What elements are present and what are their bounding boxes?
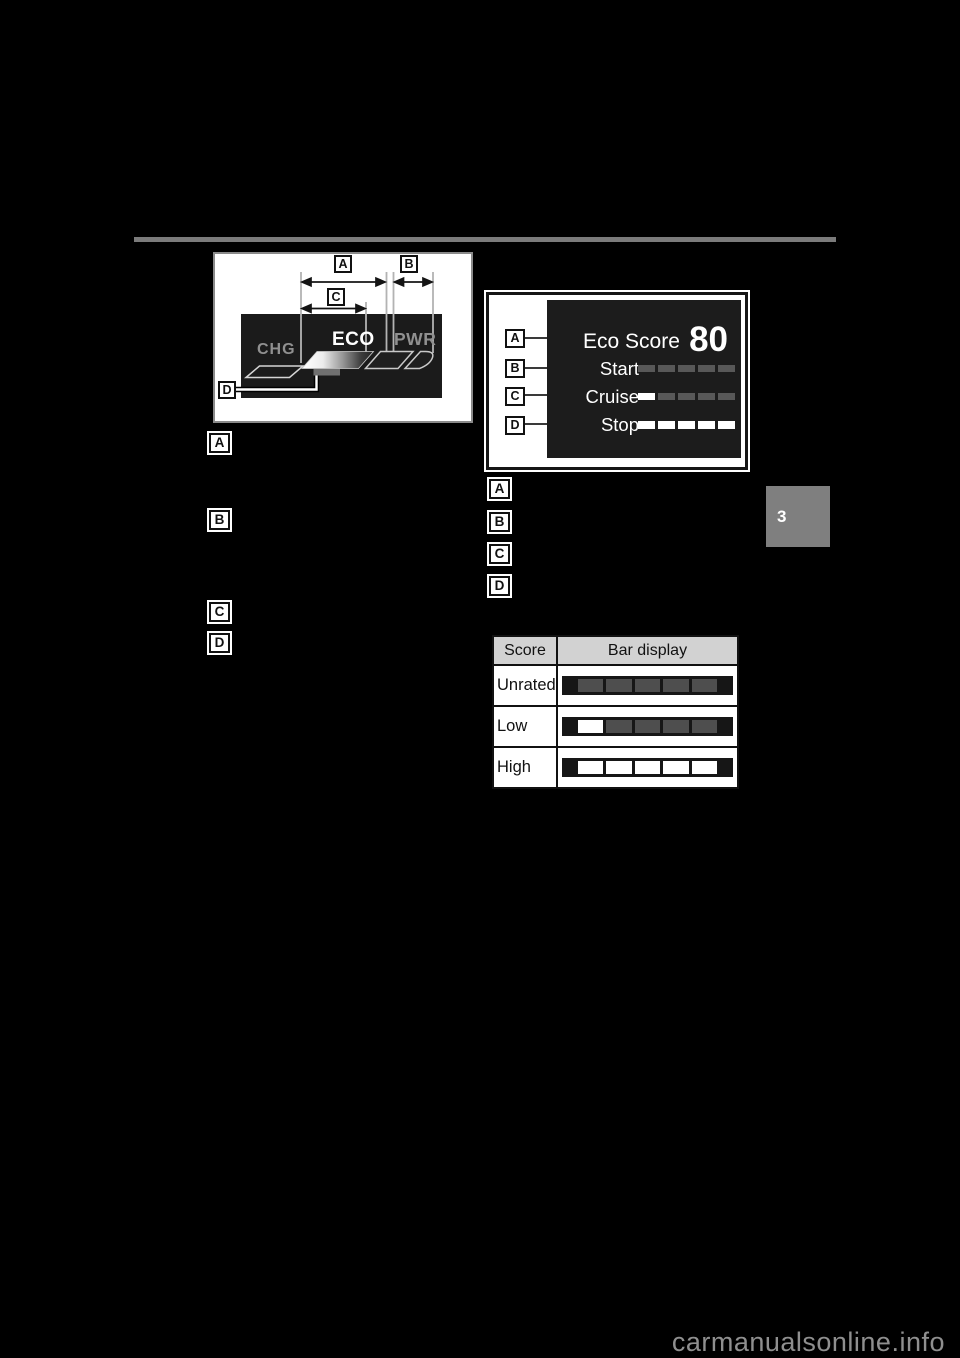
- bar-segment: [718, 393, 735, 401]
- bar-segment: [635, 720, 660, 733]
- table-cell-bar: [556, 748, 737, 787]
- figure-callout-a: A: [334, 255, 352, 273]
- eco-legend-marker-b: B: [489, 512, 510, 532]
- bar-segment: [606, 761, 631, 774]
- eco-callout-a-line: [525, 337, 547, 339]
- eco-score-title: Eco Score: [583, 331, 680, 352]
- eco-callout-d-line: [525, 423, 547, 425]
- bar-segment: [663, 679, 688, 692]
- figure-callout-d: D: [218, 381, 236, 399]
- score-bar-table: Score Bar display Unrated Low: [492, 635, 739, 789]
- pwr-zone-label: PWR: [394, 331, 436, 349]
- eco-callout-d: D: [505, 416, 525, 435]
- bar-segment: [718, 365, 735, 373]
- table-row: Low: [494, 705, 737, 746]
- score-bar-high: [562, 758, 733, 777]
- table-cell-score: Low: [494, 707, 556, 746]
- table-cell-bar: [556, 666, 737, 705]
- eco-row-label-cruise: Cruise: [547, 387, 639, 407]
- bar-segment: [606, 720, 631, 733]
- eco-sub-bar: [314, 369, 341, 376]
- bar-segment: [718, 421, 735, 429]
- hsi-legend-marker-b: B: [209, 510, 230, 530]
- eco-row-bar-cruise: [638, 393, 735, 401]
- table-row: High: [494, 746, 737, 787]
- bar-segment: [638, 421, 655, 429]
- score-bar-unrated: [562, 676, 733, 695]
- table-cell-score: High: [494, 748, 556, 787]
- bar-segment: [578, 761, 603, 774]
- eco-row-bar-stop: [638, 421, 735, 429]
- bar-segment: [692, 761, 717, 774]
- table-cell-bar: [556, 707, 737, 746]
- bar-segment: [698, 365, 715, 373]
- figure-callout-c: C: [327, 288, 345, 306]
- bar-segment: [698, 421, 715, 429]
- bar-segment: [658, 421, 675, 429]
- dimension-arrows: [302, 278, 432, 312]
- eco-callout-b: B: [505, 359, 525, 378]
- score-bar-low: [562, 717, 733, 736]
- hybrid-system-indicator-figure: CHG ECO PWR A B C D: [213, 252, 473, 423]
- table-row: Unrated: [494, 664, 737, 705]
- section-divider: [134, 237, 836, 242]
- table-header-bar-display: Bar display: [556, 637, 737, 664]
- bar-segment: [663, 720, 688, 733]
- hsi-legend-marker-c: C: [209, 602, 230, 622]
- bar-segment: [638, 393, 655, 401]
- eco-legend-marker-c: C: [489, 544, 510, 564]
- bar-segment: [658, 393, 675, 401]
- bar-segment: [678, 365, 695, 373]
- bar-segment: [635, 679, 660, 692]
- table-header-score: Score: [494, 637, 556, 664]
- bar-segment: [692, 720, 717, 733]
- bar-segment: [678, 421, 695, 429]
- bar-segment: [663, 761, 688, 774]
- bar-segment: [658, 365, 675, 373]
- bar-segment: [698, 393, 715, 401]
- hsi-legend-marker-d: D: [209, 633, 230, 653]
- eco-callout-c: C: [505, 387, 525, 406]
- bar-segment: [678, 393, 695, 401]
- chapter-tab: 3: [766, 486, 830, 547]
- eco-row-bar-start: [638, 365, 735, 373]
- eco-legend-marker-a: A: [489, 479, 510, 499]
- eco-row-label-stop: Stop: [547, 415, 639, 435]
- bar-segment: [606, 679, 631, 692]
- eco-callout-a: A: [505, 329, 525, 348]
- eco-callout-c-line: [525, 394, 547, 396]
- chapter-number: 3: [777, 507, 786, 527]
- eco-legend-marker-d: D: [489, 576, 510, 596]
- bar-segment: [692, 679, 717, 692]
- eco-score-display: Eco Score 80 Start Cruise Stop: [547, 300, 741, 458]
- hsi-legend-marker-a: A: [209, 433, 230, 453]
- table-cell-score: Unrated: [494, 666, 556, 705]
- eco-score-value: 80: [689, 322, 728, 357]
- chg-zone-label: CHG: [257, 342, 296, 358]
- eco-zone-label: ECO: [332, 330, 375, 349]
- eco-score-figure: A B C D Eco Score 80 Start Cruise Stop: [486, 292, 748, 470]
- eco-callout-b-line: [525, 367, 547, 369]
- figure-callout-b: B: [400, 255, 418, 273]
- watermark-text: carmanualsonline.info: [672, 1327, 945, 1358]
- bar-segment: [635, 761, 660, 774]
- bar-segment: [578, 679, 603, 692]
- table-header-row: Score Bar display: [494, 637, 737, 664]
- eco-row-label-start: Start: [547, 359, 639, 379]
- bar-segment: [638, 365, 655, 373]
- bar-segment: [578, 720, 603, 733]
